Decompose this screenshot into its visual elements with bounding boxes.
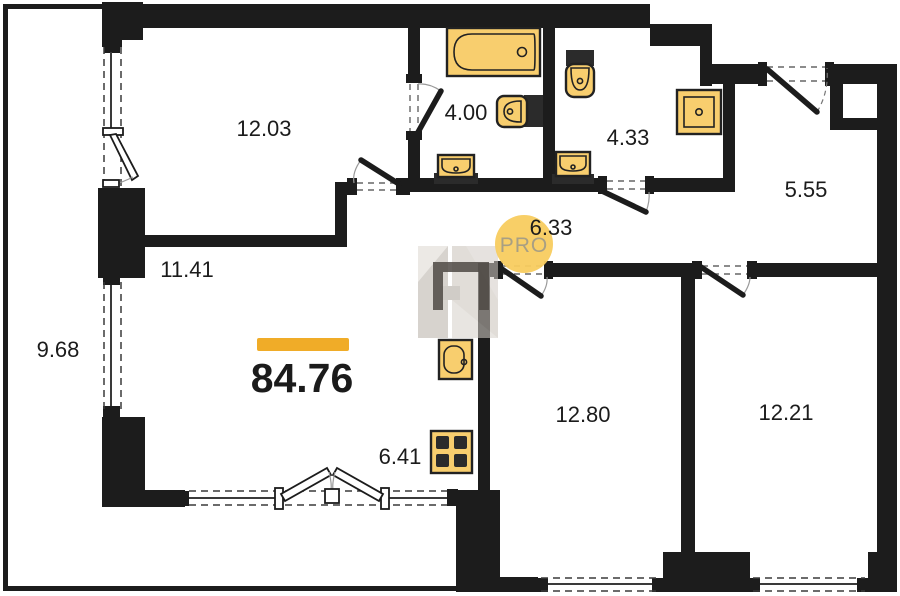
window-cap — [538, 578, 548, 592]
door-bathroom-433 — [598, 176, 654, 212]
window-cap — [178, 491, 189, 506]
room-area-label: 12.21 — [758, 400, 813, 425]
wall-segment — [3, 586, 460, 591]
window-cap — [103, 274, 120, 285]
stove-icon — [431, 431, 472, 473]
room-area-label: 6.41 — [379, 444, 422, 469]
toilet-icon — [497, 95, 543, 127]
toilet-icon — [566, 50, 594, 97]
window-cap — [447, 489, 458, 506]
wall-segment — [3, 4, 8, 591]
window-cap — [652, 578, 663, 592]
hinge-plate — [381, 488, 389, 509]
wall-segment — [335, 182, 347, 247]
open-casement-sash — [110, 134, 138, 180]
door-knob — [325, 489, 339, 503]
wall-segment — [868, 552, 897, 592]
sink-icon — [434, 155, 478, 184]
wall-segment — [650, 178, 735, 192]
wall-segment — [102, 490, 185, 507]
wall-segment — [700, 24, 712, 86]
sink-icon — [552, 152, 594, 184]
wall-segment — [122, 2, 143, 40]
open-casement-sash — [333, 468, 383, 501]
window-sill — [103, 180, 119, 187]
total-area: 84.76 — [251, 338, 354, 401]
door-bathroom-400 — [406, 74, 441, 140]
window-west-living — [103, 274, 121, 417]
door-leaf — [767, 69, 817, 112]
kitchen-sink-icon — [439, 340, 472, 379]
room-area-label: 5.55 — [785, 177, 828, 202]
french-door — [275, 468, 389, 509]
door-bedroom — [347, 160, 410, 195]
door-entrance — [758, 62, 834, 112]
room-area-label: 12.80 — [555, 402, 610, 427]
window-west-bedroom — [103, 44, 138, 188]
window-south-room1280 — [538, 578, 663, 592]
wall-segment — [456, 577, 538, 592]
floor-plan-image: PRO 12.03 4.00 4.33 5.55 6.33 11.41 9.68… — [0, 0, 900, 596]
window-cap — [750, 578, 760, 592]
window-cap — [857, 578, 868, 592]
room-area-label: 4.33 — [607, 125, 650, 150]
room-area-label: 11.41 — [160, 257, 213, 282]
wall-segment — [828, 64, 897, 84]
wall-segment — [663, 552, 750, 592]
window-cap — [104, 44, 120, 53]
window-south-living — [178, 468, 458, 509]
wall-segment — [98, 188, 145, 278]
wall-segment — [456, 490, 500, 577]
wall-segment — [712, 64, 765, 84]
door-room1221 — [692, 261, 757, 295]
wall-segment — [145, 235, 335, 247]
wall-segment — [143, 4, 650, 28]
room-area-label: 6.33 — [530, 215, 573, 240]
wall-segment — [723, 84, 735, 192]
bathtub-icon — [447, 28, 540, 76]
shower-icon — [677, 90, 721, 134]
wall-segment — [543, 28, 555, 192]
window-south-room1221 — [750, 578, 868, 592]
balcony-walls — [3, 4, 460, 591]
door-leaf — [361, 160, 399, 184]
total-area-label: 84.76 — [251, 355, 354, 401]
hinge-plate — [275, 488, 283, 509]
wall-segment — [752, 263, 897, 277]
wall-segment — [547, 263, 694, 277]
open-casement-sash — [281, 468, 331, 501]
floor-plan: PRO 12.03 4.00 4.33 5.55 6.33 11.41 9.68… — [0, 0, 900, 596]
room-area-label: 9.68 — [37, 337, 80, 362]
room-area-label: 12.03 — [236, 116, 291, 141]
wall-segment — [877, 84, 897, 554]
wall-segment — [3, 4, 103, 9]
wall-segment — [833, 118, 877, 130]
wall-segment — [408, 28, 420, 78]
room-area-label: 4.00 — [445, 100, 488, 125]
wall-segment — [102, 2, 122, 47]
total-area-bar — [257, 338, 349, 351]
window-cap — [103, 406, 120, 417]
door-leaf — [417, 91, 441, 134]
door-leaf — [701, 267, 743, 295]
door-leaf — [602, 191, 646, 212]
wall-segment — [681, 265, 695, 552]
